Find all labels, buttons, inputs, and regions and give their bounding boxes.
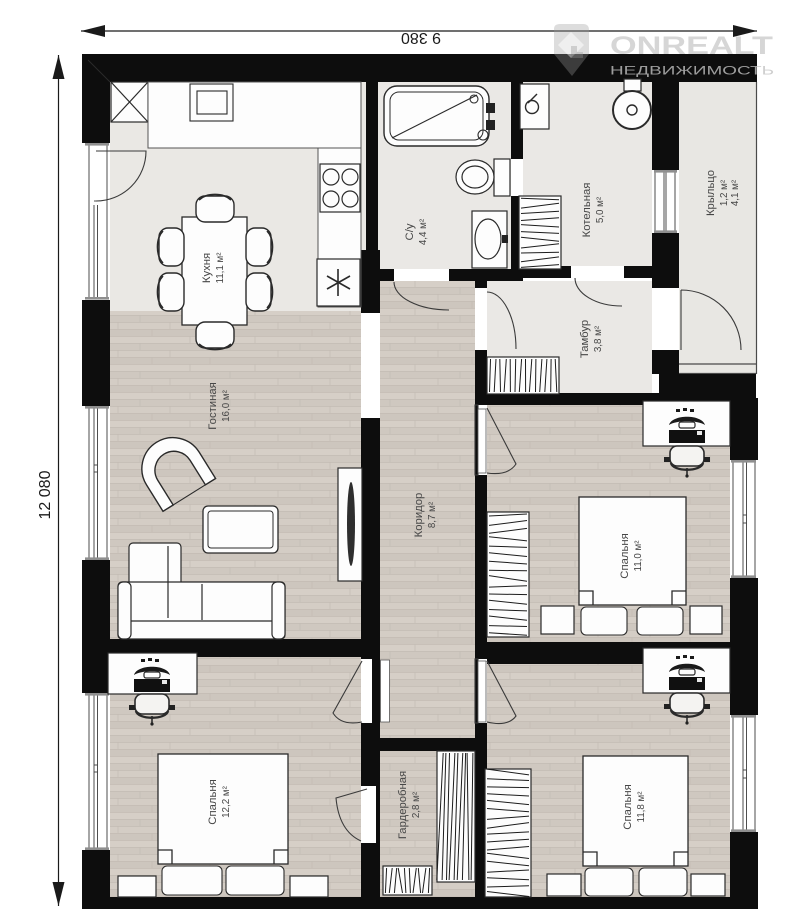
svg-text:НЕДВИЖИМОСТЬ: НЕДВИЖИМОСТЬ: [610, 66, 774, 78]
svg-text:ONREALT: ONREALT: [610, 32, 773, 60]
svg-text:12 080: 12 080: [37, 470, 54, 519]
svg-text:9 380: 9 380: [401, 29, 441, 46]
